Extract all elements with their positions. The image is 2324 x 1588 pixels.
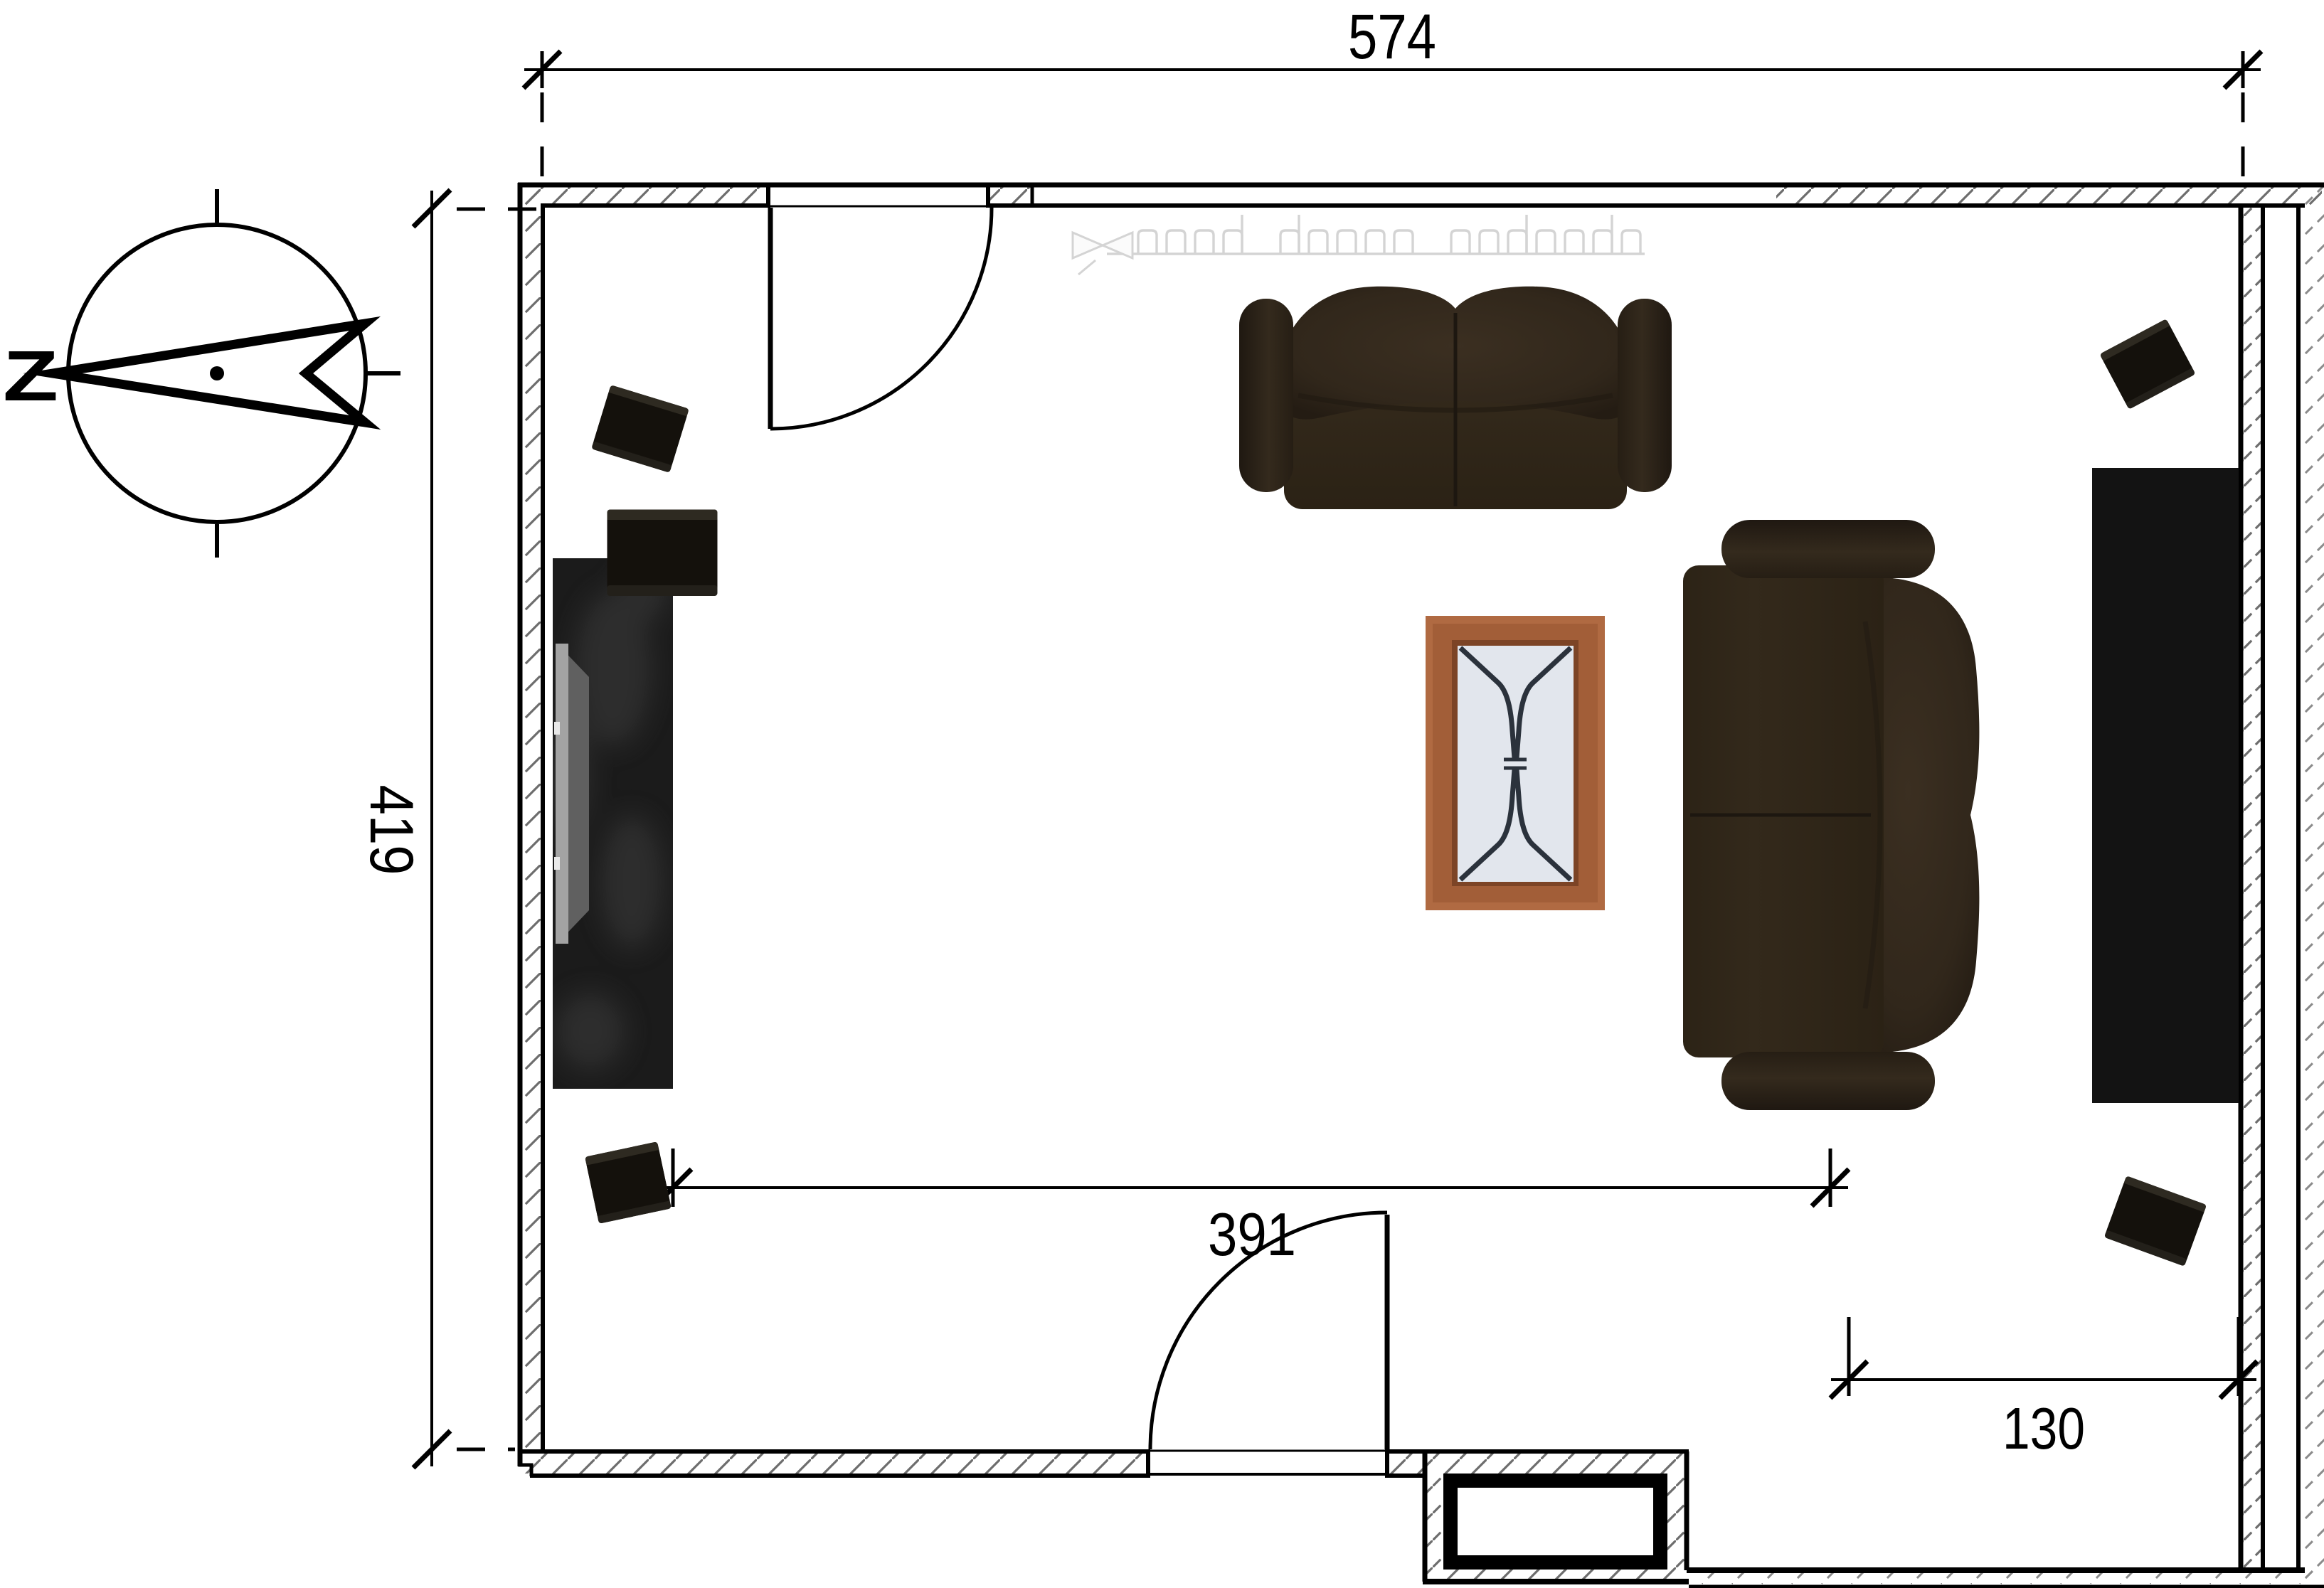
svg-text:Z: Z: [3, 336, 58, 416]
svg-text:130: 130: [2002, 1397, 2085, 1462]
svg-text:419: 419: [357, 785, 426, 875]
svg-text:574: 574: [1348, 2, 1436, 73]
svg-text:391: 391: [1208, 1200, 1296, 1268]
